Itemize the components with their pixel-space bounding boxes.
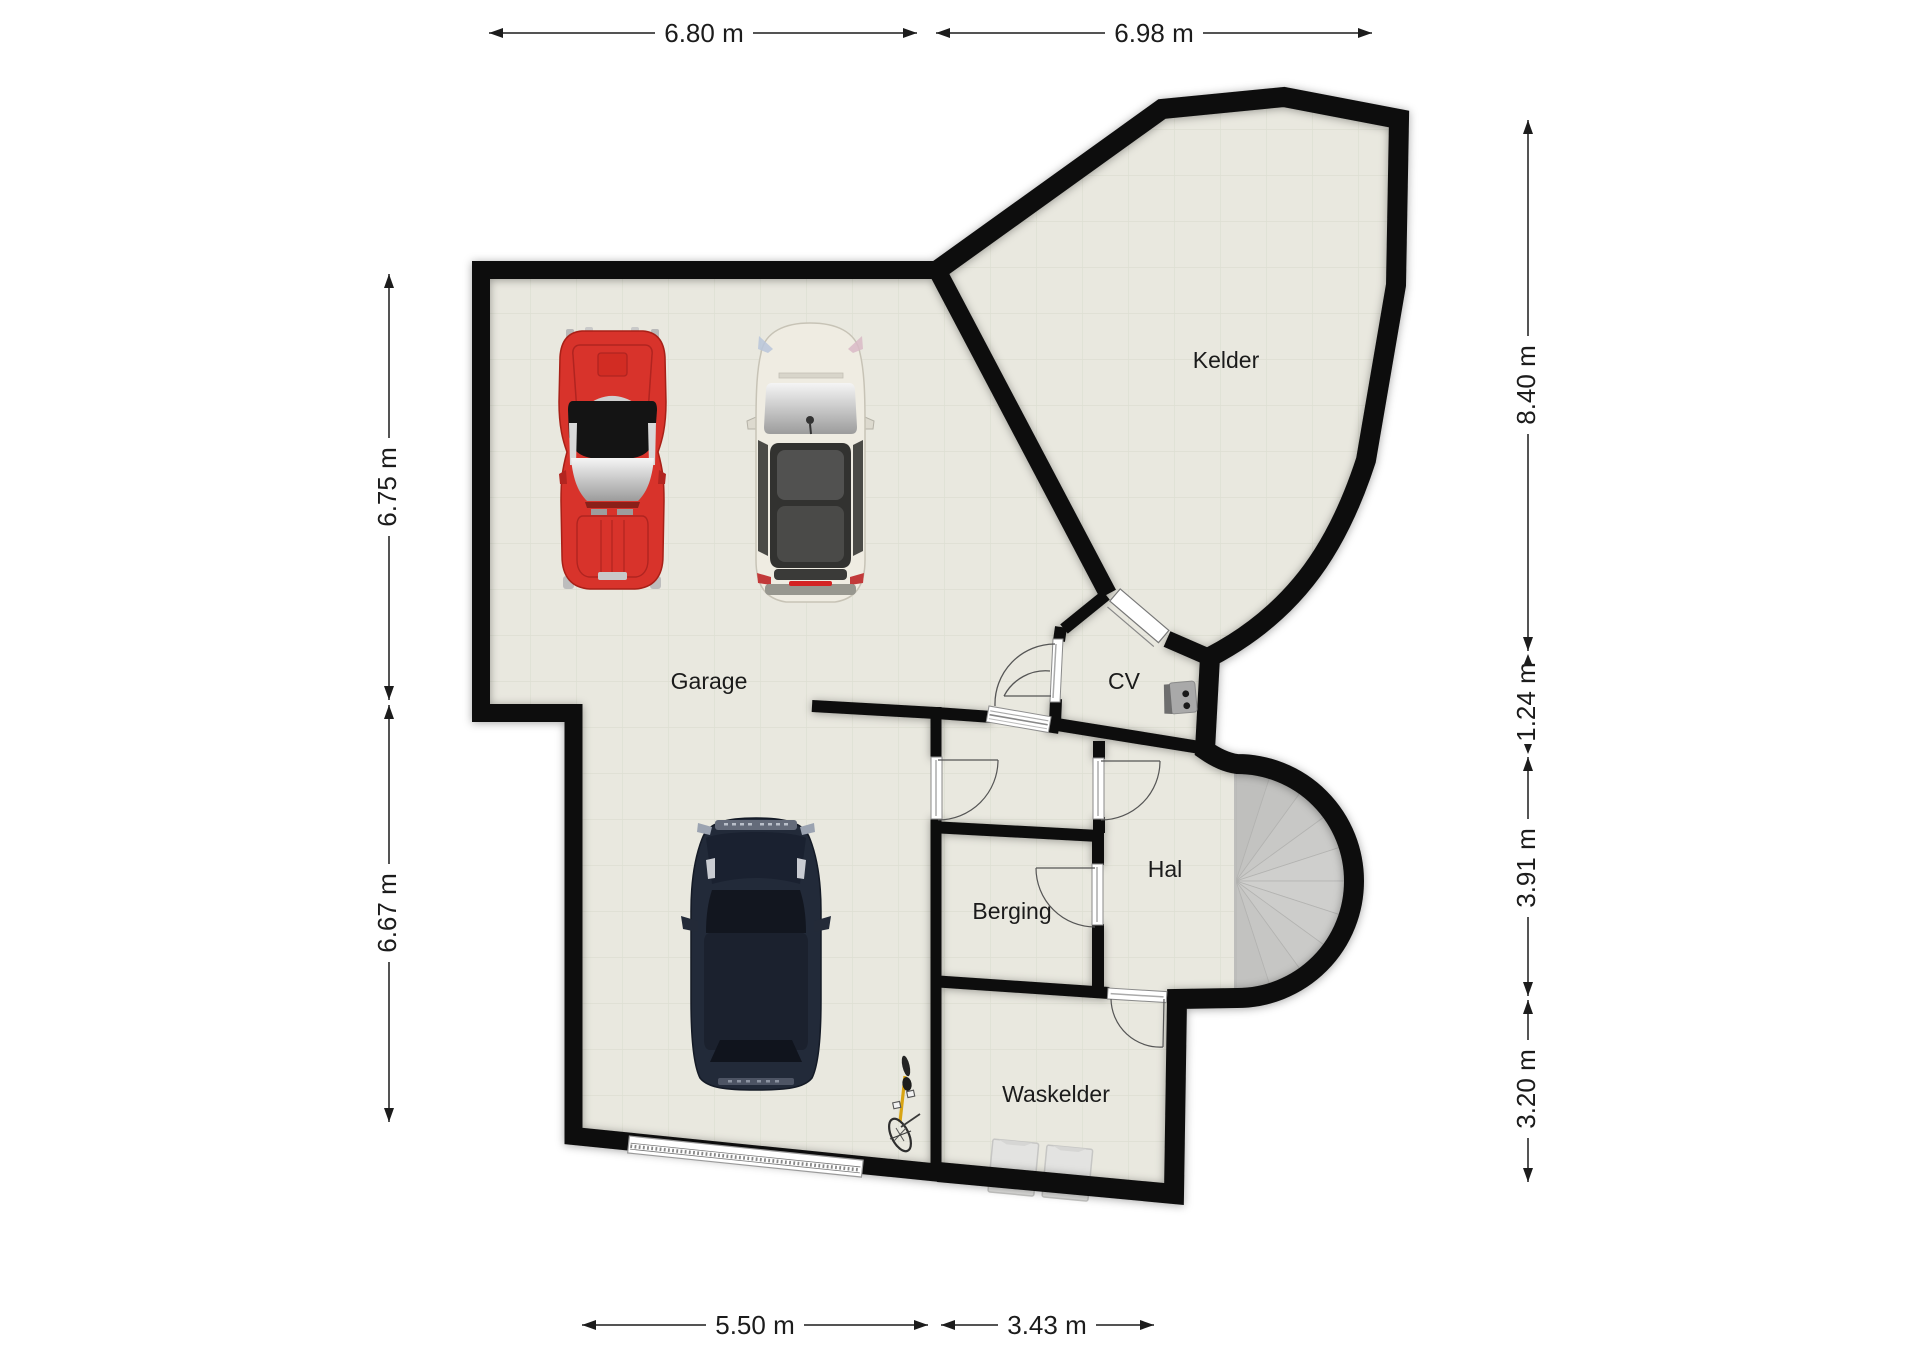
svg-text:8.40 m: 8.40 m [1511, 345, 1541, 425]
svg-text:Garage: Garage [671, 668, 748, 694]
svg-text:Berging: Berging [972, 898, 1051, 924]
svg-text:CV: CV [1108, 668, 1141, 694]
svg-text:6.67 m: 6.67 m [372, 873, 402, 953]
svg-text:1.24 m: 1.24 m [1511, 662, 1541, 742]
svg-text:5.50 m: 5.50 m [715, 1310, 795, 1340]
svg-text:Waskelder: Waskelder [1002, 1081, 1110, 1107]
svg-text:3.43 m: 3.43 m [1007, 1310, 1087, 1340]
svg-text:Kelder: Kelder [1193, 347, 1260, 373]
svg-text:6.75 m: 6.75 m [372, 447, 402, 527]
svg-text:3.20 m: 3.20 m [1511, 1049, 1541, 1129]
svg-text:Hal: Hal [1148, 856, 1183, 882]
svg-text:6.98 m: 6.98 m [1114, 18, 1194, 48]
svg-text:6.80 m: 6.80 m [664, 18, 744, 48]
svg-text:3.91 m: 3.91 m [1511, 828, 1541, 908]
